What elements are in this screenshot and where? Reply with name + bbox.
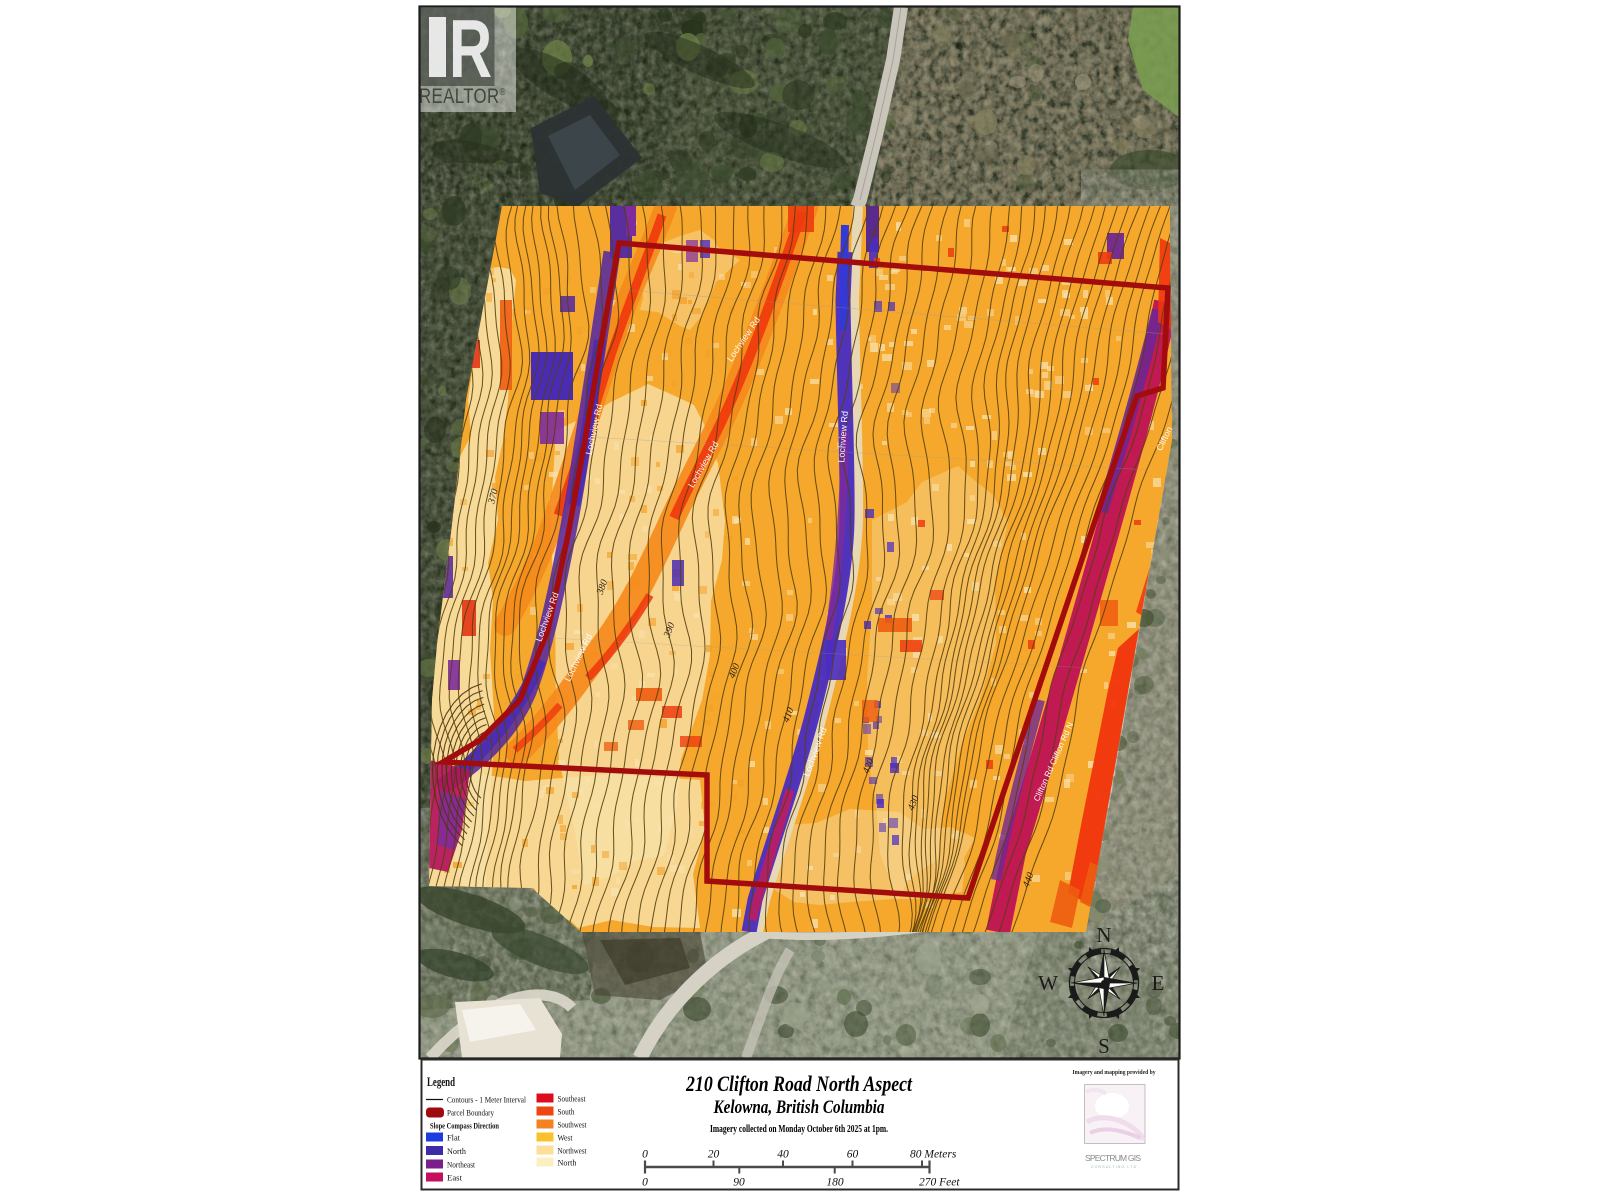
svg-text:20: 20 [708,1149,720,1161]
svg-text:0: 0 [642,1149,648,1161]
svg-text:South: South [558,1107,575,1117]
svg-text:Southeast: Southeast [558,1094,586,1104]
svg-text:210 Clifton Road North Aspect: 210 Clifton Road North Aspect [685,1071,913,1096]
svg-text:East: East [447,1173,463,1183]
svg-text:Slope Compass Direction: Slope Compass Direction [430,1121,499,1131]
svg-text:Imagery and mapping provided b: Imagery and mapping provided by [1073,1069,1157,1076]
svg-text:90: 90 [733,1177,745,1189]
svg-text:Southwest: Southwest [558,1120,587,1130]
svg-text:R: R [449,4,492,96]
svg-text:80 Meters: 80 Meters [910,1149,957,1161]
svg-text:W: W [1038,971,1058,995]
svg-text:180: 180 [826,1177,844,1189]
svg-text:Contours - 1 Meter Interval: Contours - 1 Meter Interval [447,1095,526,1105]
svg-text:60: 60 [847,1149,859,1161]
svg-text:270 Feet: 270 Feet [919,1177,960,1189]
svg-text:40: 40 [777,1149,789,1161]
svg-text:S: S [1098,1034,1110,1058]
svg-text:SPECTRUM GIS: SPECTRUM GIS [1085,1153,1143,1163]
svg-text:0: 0 [642,1177,648,1189]
svg-text:Northwest: Northwest [558,1146,587,1156]
svg-text:Imagery collected on Monday Oc: Imagery collected on Monday October 6th … [710,1124,888,1135]
svg-text:North: North [447,1146,467,1156]
svg-text:Parcel Boundary: Parcel Boundary [447,1108,494,1118]
svg-text:REALTOR®: REALTOR® [419,85,506,108]
svg-text:West: West [558,1133,573,1143]
svg-text:N: N [1096,923,1111,947]
svg-text:Kelowna, British Columbia: Kelowna, British Columbia [713,1097,885,1118]
svg-text:North: North [558,1158,578,1168]
svg-text:Legend: Legend [427,1075,455,1089]
svg-text:E: E [1152,971,1165,995]
svg-text:Northeast: Northeast [447,1160,475,1170]
svg-text:Flat: Flat [447,1133,461,1143]
svg-text:CONSULTING LTD: CONSULTING LTD [1091,1165,1138,1169]
